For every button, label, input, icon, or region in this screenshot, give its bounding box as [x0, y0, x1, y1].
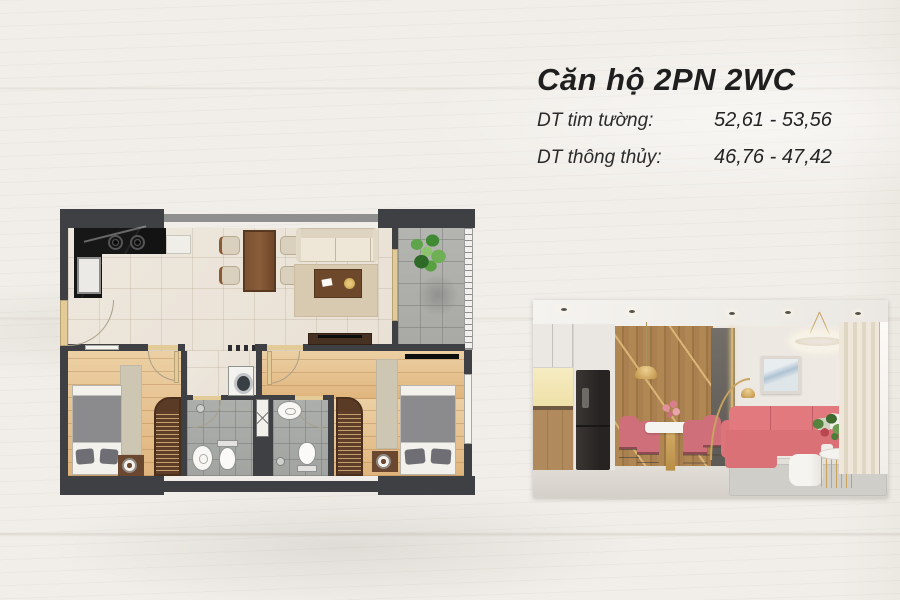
- plan-wall-bottom-middle: [164, 481, 378, 492]
- plan-wardrobe-2: [336, 397, 363, 476]
- plan-technical-shaft: [256, 399, 269, 437]
- plan-slat-partition: [228, 345, 255, 351]
- plan-wall-balcony-top: [392, 228, 398, 249]
- spec-row-gross-area: DT tim tường: 52,61 - 53,56: [537, 109, 867, 132]
- photo-curtains: [839, 322, 879, 474]
- plan-wall-bottom-left: [60, 476, 164, 495]
- apartment-brochure: Căn hộ 2PN 2WC DT tim tường: 52,61 - 53,…: [0, 0, 900, 600]
- photo-window: [879, 322, 888, 474]
- floor-plan: [60, 209, 475, 495]
- plan-bedroom1-rug: [120, 365, 142, 455]
- plan-wall-bedroom1-right: [181, 351, 187, 476]
- spec-value-gross: 52,61 - 53,56: [714, 109, 832, 132]
- plan-balcony-sliding-door: [392, 249, 398, 321]
- plan-toilet-1: [219, 447, 236, 470]
- spec-row-net-area: DT thông thủy: 46,76 - 47,42: [537, 146, 867, 169]
- photo-upper-cabinets: [533, 324, 573, 368]
- plan-sink-2: [277, 401, 302, 420]
- plan-wall-between-baths: [253, 437, 273, 476]
- photo-arc-lamp-shade: [741, 388, 755, 398]
- photo-dining-chair: [619, 416, 639, 466]
- spec-value-net: 46,76 - 47,42: [714, 146, 832, 169]
- plan-kitchen-sink: [166, 235, 191, 254]
- photo-fridge: [576, 370, 610, 470]
- plan-washing-machine: [228, 366, 254, 396]
- plan-wall-top-middle: [164, 214, 378, 222]
- plan-toilet2-tank: [297, 465, 317, 472]
- plan-door-panel-bedroom1: [174, 351, 179, 383]
- photo-table-base: [666, 431, 675, 471]
- plan-wall-hall-bedroom2: [256, 351, 262, 399]
- plan-window-bedroom1: [85, 345, 119, 350]
- plan-stove-burner-2: [130, 235, 145, 250]
- plan-stove-burner-1: [108, 235, 123, 250]
- plan-balcony-plant: [404, 230, 450, 278]
- plan-entrance-door: [60, 300, 68, 346]
- photo-spotlight: [729, 312, 735, 315]
- plan-wall-balcony-bottom: [392, 321, 398, 350]
- plan-dining-table: [243, 230, 276, 292]
- plan-bedroom2-stool: [376, 454, 391, 469]
- page-title: Căn hộ 2PN 2WC: [537, 62, 795, 98]
- plan-shower-1: [196, 404, 205, 413]
- plan-wall-left-lower: [60, 346, 68, 476]
- plan-fridge: [77, 257, 101, 294]
- plan-threshold-bedroom1: [148, 345, 178, 350]
- plan-wall-top-right: [378, 209, 475, 228]
- photo-wall-art: [761, 356, 801, 394]
- plan-bed-1: [72, 385, 122, 475]
- plan-balcony-railing: [464, 228, 473, 350]
- plan-threshold-bedroom2: [267, 345, 303, 350]
- spec-label-net: DT thông thủy:: [537, 147, 714, 169]
- plan-tv-bedroom2: [405, 354, 459, 359]
- photo-spotlight: [561, 308, 567, 311]
- photo-spotlight: [629, 310, 635, 313]
- plan-wall-mid-c: [255, 344, 267, 351]
- plan-shower-2: [276, 457, 285, 466]
- plan-bedroom2-rug: [376, 359, 398, 449]
- photo-spotlight: [855, 312, 861, 315]
- plan-wall-mid-d: [303, 344, 465, 351]
- photo-sofa-chaise: [725, 452, 777, 468]
- plan-wall-top-left: [60, 209, 164, 228]
- spec-label-gross: DT tim tường:: [537, 110, 714, 132]
- interior-photo: [533, 300, 888, 498]
- photo-pendant-cord: [646, 322, 647, 368]
- plan-bed-2: [400, 385, 456, 475]
- photo-lower-cabinets: [533, 410, 575, 470]
- plan-wardrobe-1: [154, 397, 181, 476]
- plan-window-bedroom2: [464, 374, 472, 444]
- photo-coffee-table-white: [789, 454, 823, 486]
- photo-backsplash: [533, 368, 573, 408]
- plan-toilet1-tank: [217, 440, 238, 447]
- plan-wall-left-upper: [60, 228, 68, 300]
- plan-wall-shaft-bath2: [269, 399, 273, 437]
- plan-sofa: [296, 228, 378, 262]
- plan-tv: [318, 335, 362, 338]
- plan-door-panel-bedroom2: [267, 351, 272, 385]
- plan-wall-mid-b: [178, 344, 185, 351]
- plan-toilet-2: [298, 442, 316, 465]
- plan-wall-bath2-bedroom2: [328, 399, 334, 476]
- plan-coffee-table: [314, 269, 362, 298]
- plan-bedroom1-stool: [122, 458, 137, 473]
- photo-flower-vase: [659, 398, 683, 423]
- plan-sink-1: [192, 445, 213, 471]
- plan-wall-bottom-right: [378, 476, 475, 495]
- photo-pendant-lamp: [635, 366, 657, 379]
- plan-dining-chair: [219, 236, 240, 255]
- plan-dining-chair: [219, 266, 240, 285]
